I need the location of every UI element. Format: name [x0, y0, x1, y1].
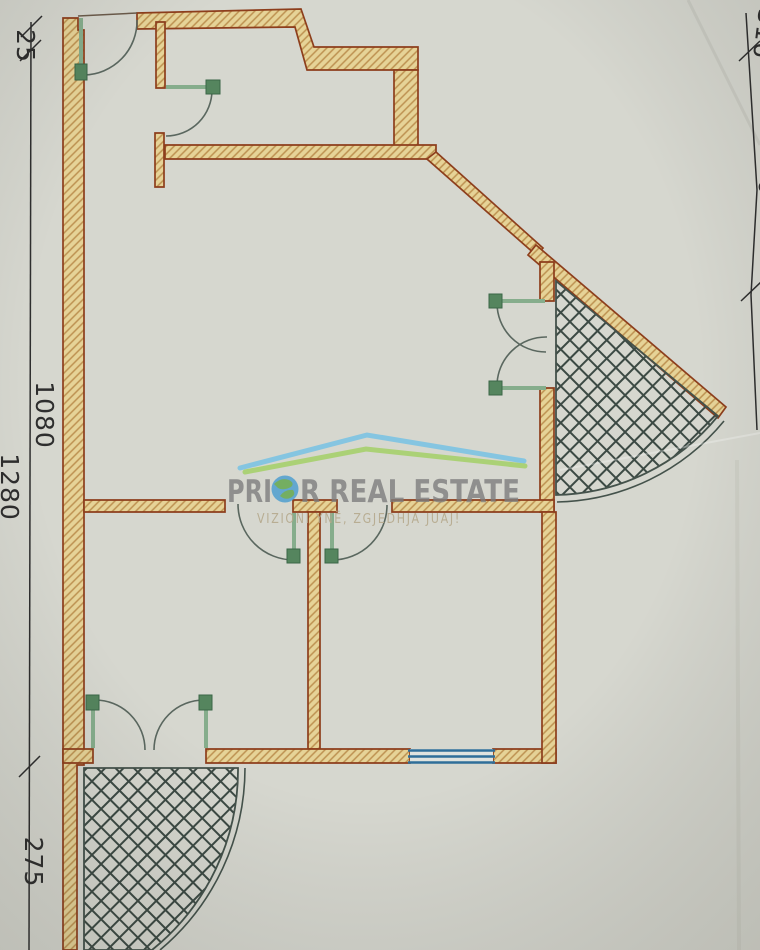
vignette-overlay	[0, 0, 760, 950]
paper-artifacts	[0, 0, 760, 950]
scanned-floor-plan-page: PRI R REAL ESTATE VIZIONI YNË, ZGJEDHJA …	[0, 0, 760, 950]
floor-plan-canvas: PRI R REAL ESTATE VIZIONI YNË, ZGJEDHJA …	[0, 0, 760, 950]
